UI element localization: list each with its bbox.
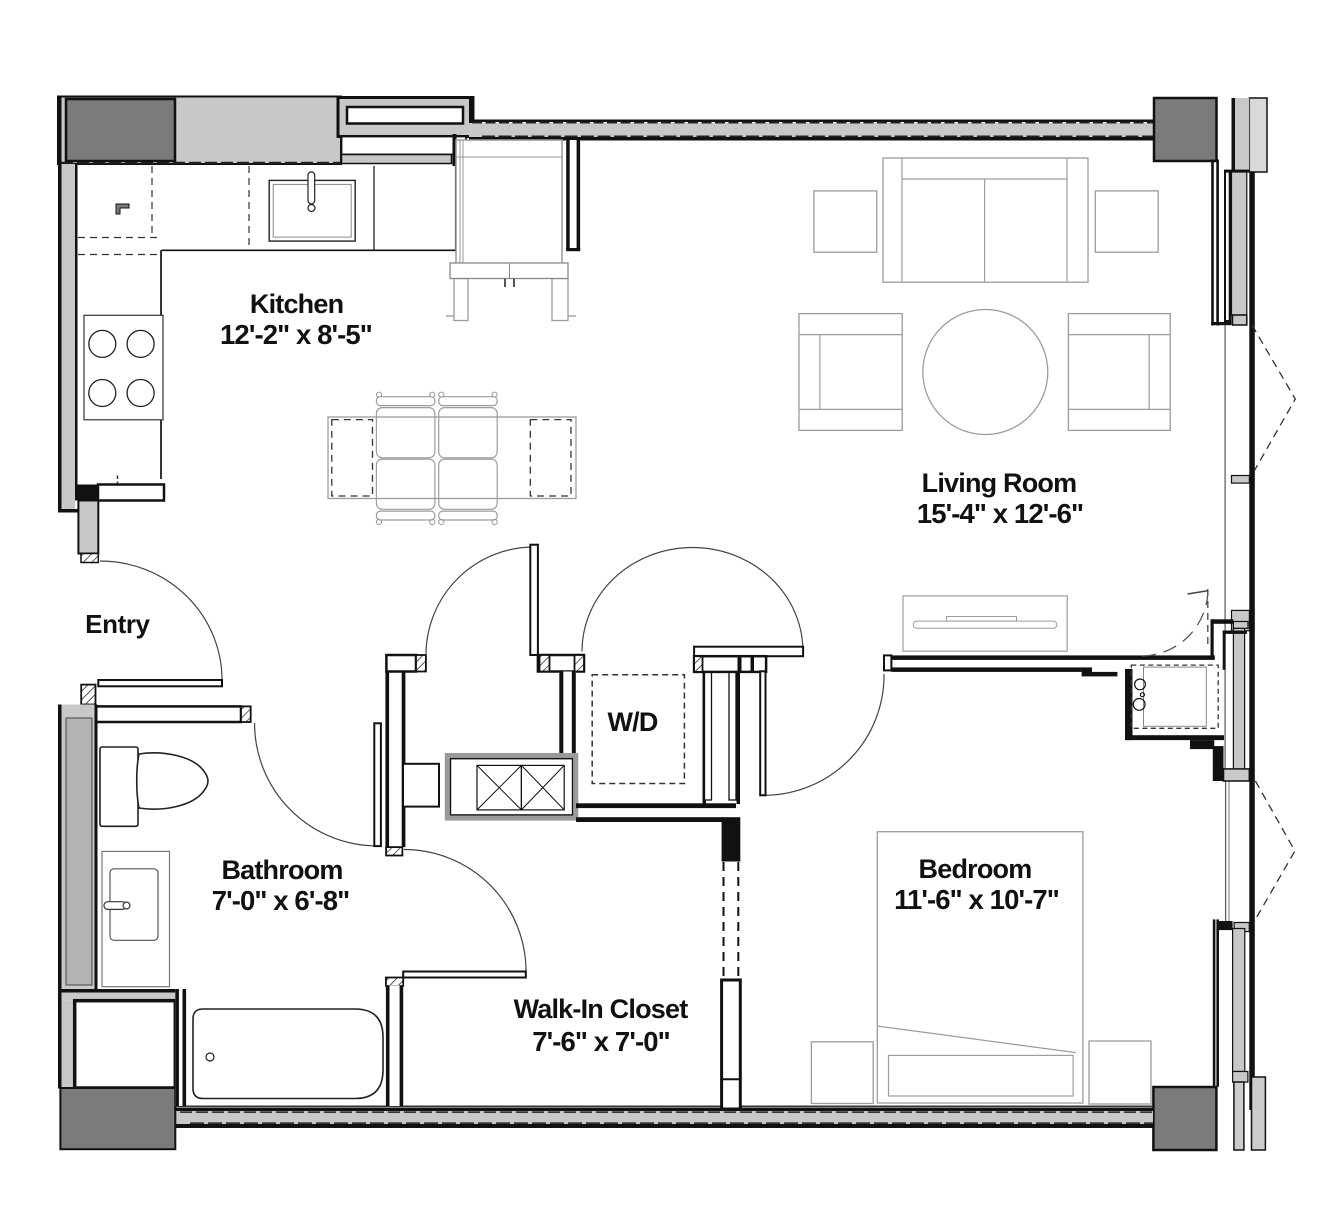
svg-text:15'-4" x 12'-6": 15'-4" x 12'-6" (917, 498, 1083, 529)
svg-text:Living Room: Living Room (922, 468, 1077, 498)
svg-text:Entry: Entry (85, 609, 150, 639)
svg-text:Walk-In Closet: Walk-In Closet (514, 994, 689, 1024)
svg-text:Kitchen: Kitchen (250, 289, 343, 319)
svg-text:W/D: W/D (607, 707, 657, 737)
svg-text:Bedroom: Bedroom (919, 854, 1032, 884)
svg-text:7'-6" x 7'-0": 7'-6" x 7'-0" (532, 1026, 670, 1057)
svg-text:7'-0" x 6'-8": 7'-0" x 6'-8" (212, 885, 350, 916)
svg-text:12'-2" x 8'-5": 12'-2" x 8'-5" (220, 319, 372, 350)
svg-text:11'-6" x 10'-7": 11'-6" x 10'-7" (894, 884, 1059, 915)
svg-text:Bathroom: Bathroom (221, 855, 342, 885)
